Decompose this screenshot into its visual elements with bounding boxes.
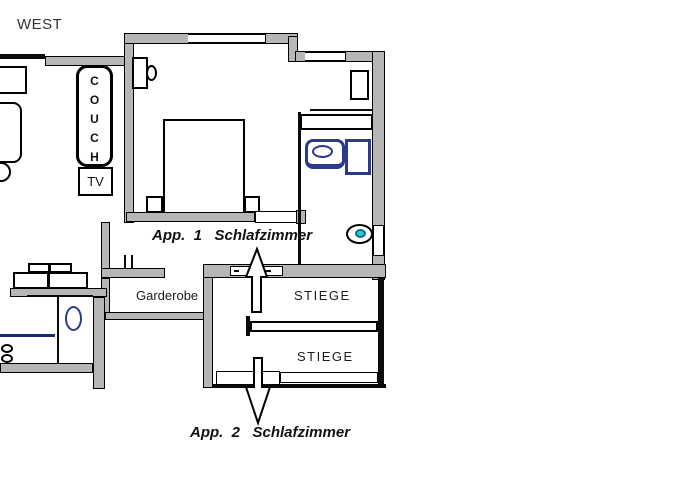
bedroom-north-window	[188, 33, 267, 44]
door-jamb-right	[131, 255, 133, 268]
stair-door-tick-1	[234, 270, 239, 272]
garderobe-label: Garderobe	[136, 288, 198, 303]
floor-plan: WEST C O U C H TV App. 1 Schlafzimmer	[0, 0, 700, 500]
bedroom-north-wall-left	[124, 33, 190, 44]
east-wall-window	[372, 226, 385, 255]
couch-label: C O U C H	[79, 72, 110, 167]
vanity-top-line	[27, 295, 93, 297]
sideboard	[0, 66, 27, 94]
east-cabinet	[350, 70, 369, 100]
shelf-large-2	[48, 272, 88, 289]
tv-label: TV	[80, 169, 111, 194]
handrail	[250, 321, 378, 332]
apartment2-label: App. 2 Schlafzimmer	[190, 424, 350, 441]
tv-stand: TV	[78, 167, 113, 196]
bathroom-sink-basin	[312, 145, 333, 158]
stair-south-door-2	[280, 372, 378, 383]
side-table-circle	[0, 162, 11, 182]
burner-oval-2	[1, 354, 13, 363]
stair-east-wall	[378, 278, 384, 388]
east-exterior-wall-upper	[372, 51, 385, 226]
garderobe-north-wall	[101, 268, 165, 278]
shelf-large-1	[13, 272, 49, 289]
vanity-sink-oval	[65, 306, 82, 331]
arrow-down-icon	[244, 357, 272, 425]
bed-foot-left	[146, 196, 163, 213]
armchair	[0, 102, 22, 163]
arrow-up-icon	[244, 248, 270, 314]
stiege-lower-label: STIEGE	[297, 349, 354, 364]
door-jamb-left	[124, 255, 126, 268]
hallway-west-wall	[101, 222, 110, 270]
stair-west-wall	[203, 268, 213, 388]
burner-oval-1	[1, 344, 13, 353]
apartment1-label: App. 1 Schlafzimmer	[152, 227, 312, 244]
couch: C O U C H	[76, 65, 113, 167]
bathroom-counter	[300, 114, 373, 130]
toilet-lid	[355, 229, 366, 238]
vanity-left-line	[57, 297, 59, 363]
kitchen-south-wall	[0, 363, 93, 373]
garderobe-south-wall	[105, 312, 205, 320]
shower-unit	[345, 139, 371, 175]
west-label: WEST	[17, 16, 62, 33]
bed	[163, 119, 245, 214]
exterior-wall-top-left	[0, 54, 45, 59]
stiege-upper-label: STIEGE	[294, 288, 351, 303]
wardrobe-knob	[146, 65, 157, 81]
bedroom-north-window-2	[305, 51, 347, 62]
bedroom-south-wall	[126, 212, 255, 222]
kitchen-counter-line	[0, 334, 55, 337]
bathroom-counter-line	[310, 109, 373, 111]
bedroom-door	[255, 211, 298, 223]
kitchen-east-wall	[93, 297, 105, 389]
